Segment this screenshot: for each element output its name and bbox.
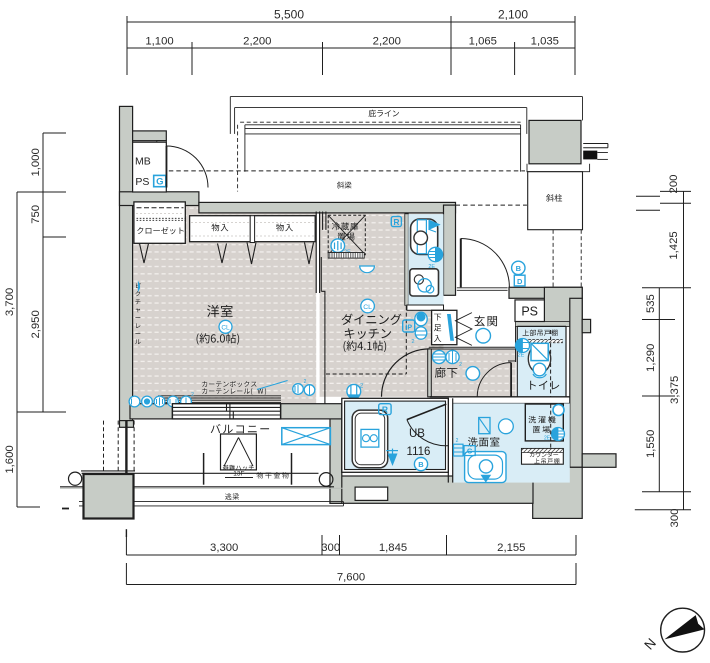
svg-text:5,500: 5,500 [274, 8, 304, 22]
svg-text:1,550: 1,550 [645, 430, 657, 458]
svg-text:2: 2 [456, 438, 459, 444]
svg-text:1,425: 1,425 [668, 231, 680, 259]
svg-text:IP: IP [405, 325, 412, 332]
svg-text:1116: 1116 [407, 446, 431, 458]
svg-text:750: 750 [30, 205, 42, 224]
svg-text:3,375: 3,375 [669, 376, 681, 404]
svg-text:1,600: 1,600 [4, 445, 16, 473]
svg-text:1,065: 1,065 [469, 36, 497, 48]
svg-text:2: 2 [411, 339, 414, 345]
svg-text:200: 200 [668, 175, 680, 194]
svg-text:2,950: 2,950 [30, 310, 42, 338]
svg-text:1,845: 1,845 [379, 542, 407, 554]
svg-text:3,300: 3,300 [210, 542, 238, 554]
svg-text:G: G [156, 177, 163, 188]
svg-text:13F: 13F [233, 471, 244, 478]
svg-text:2,100: 2,100 [498, 8, 528, 22]
svg-text:2,155: 2,155 [497, 542, 525, 554]
svg-text:1,100: 1,100 [145, 36, 173, 48]
svg-text:7,600: 7,600 [337, 572, 365, 584]
svg-text:1,000: 1,000 [30, 148, 42, 176]
svg-text:1,290: 1,290 [645, 344, 657, 372]
svg-text:2: 2 [191, 392, 194, 398]
svg-text:2,200: 2,200 [243, 36, 271, 48]
svg-text:535: 535 [645, 294, 657, 313]
svg-text:CL: CL [363, 304, 372, 311]
svg-text:N: N [641, 635, 659, 652]
svg-text:R: R [382, 405, 388, 415]
svg-text:2E: 2E [544, 436, 551, 442]
svg-text:B: B [516, 264, 522, 273]
svg-text:2: 2 [459, 362, 462, 368]
svg-text:MB: MB [135, 156, 151, 168]
svg-text:300: 300 [669, 509, 681, 528]
svg-text:D: D [517, 277, 523, 286]
svg-text:2,200: 2,200 [373, 36, 401, 48]
svg-text:PS: PS [521, 305, 538, 319]
svg-text:R: R [393, 217, 399, 227]
svg-text:B: B [418, 460, 424, 469]
svg-text:PS: PS [135, 176, 149, 188]
svg-text:300: 300 [321, 542, 340, 554]
svg-text:C: C [467, 447, 473, 456]
svg-text:2: 2 [304, 379, 307, 385]
svg-text:3,700: 3,700 [4, 288, 16, 316]
svg-text:CL: CL [221, 325, 230, 332]
svg-text:2E: 2E [518, 353, 525, 359]
svg-text:1,035: 1,035 [531, 36, 559, 48]
